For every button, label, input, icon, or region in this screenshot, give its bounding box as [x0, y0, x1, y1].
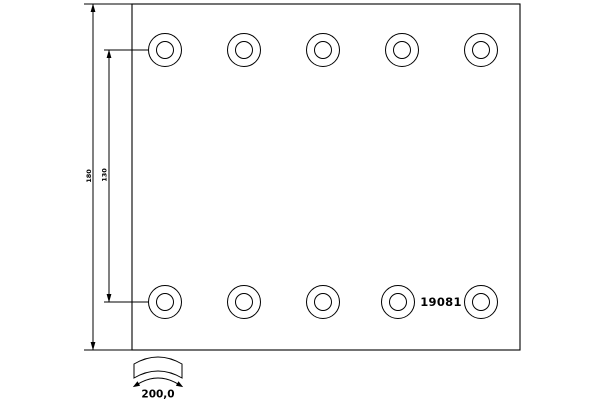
rivet-hole-outer [465, 286, 498, 319]
part-number-label: 19081 [420, 295, 462, 309]
rivet-hole-inner [394, 42, 411, 59]
rivet-hole [228, 286, 261, 319]
arc-length-symbol: 200,0 [133, 357, 183, 400]
rivet-hole [386, 34, 419, 67]
arrow-left-icon [133, 381, 140, 387]
rivet-hole [228, 34, 261, 67]
hole-spacing-dimension: 130 [101, 50, 149, 303]
rivet-hole [149, 34, 182, 67]
rivet-hole-outer [149, 286, 182, 319]
rivet-hole-outer [228, 286, 261, 319]
rivet-hole-inner [473, 294, 490, 311]
arc-length-label: 200,0 [141, 389, 174, 400]
direction-arrow-arc [138, 378, 178, 384]
rivet-hole-inner [473, 42, 490, 59]
rivet-hole-inner [315, 294, 332, 311]
arrow-up-icon [91, 4, 96, 13]
rivet-hole [307, 34, 340, 67]
lining-outline [132, 4, 520, 350]
technical-drawing-page: 19081 180 130 200,0 [0, 0, 600, 400]
rivet-hole-inner [236, 42, 253, 59]
rivet-hole-inner [315, 42, 332, 59]
height-dimension-label: 180 [85, 169, 93, 183]
rivet-hole-row-top [149, 34, 498, 67]
rivet-hole-inner [390, 294, 407, 311]
arrow-down-icon [107, 294, 112, 303]
rivet-hole-inner [157, 42, 174, 59]
rivet-hole-outer [382, 286, 415, 319]
rivet-hole [307, 286, 340, 319]
curved-lining-profile-icon [134, 357, 182, 378]
rivet-hole-inner [157, 294, 174, 311]
rivet-hole-outer [465, 34, 498, 67]
arrow-down-icon [91, 342, 96, 351]
rivet-hole [465, 286, 498, 319]
rivet-hole [382, 286, 415, 319]
rivet-hole-outer [386, 34, 419, 67]
arrow-up-icon [107, 50, 112, 59]
rivet-hole [149, 286, 182, 319]
rivet-hole-inner [236, 294, 253, 311]
hole-spacing-label: 130 [101, 168, 109, 182]
arrow-right-icon [176, 381, 183, 387]
brake-lining-technical-drawing: 19081 180 130 200,0 [0, 0, 600, 400]
rivet-hole-outer [228, 34, 261, 67]
rivet-hole-outer [149, 34, 182, 67]
rivet-hole [465, 34, 498, 67]
rivet-hole-outer [307, 34, 340, 67]
rivet-hole-outer [307, 286, 340, 319]
